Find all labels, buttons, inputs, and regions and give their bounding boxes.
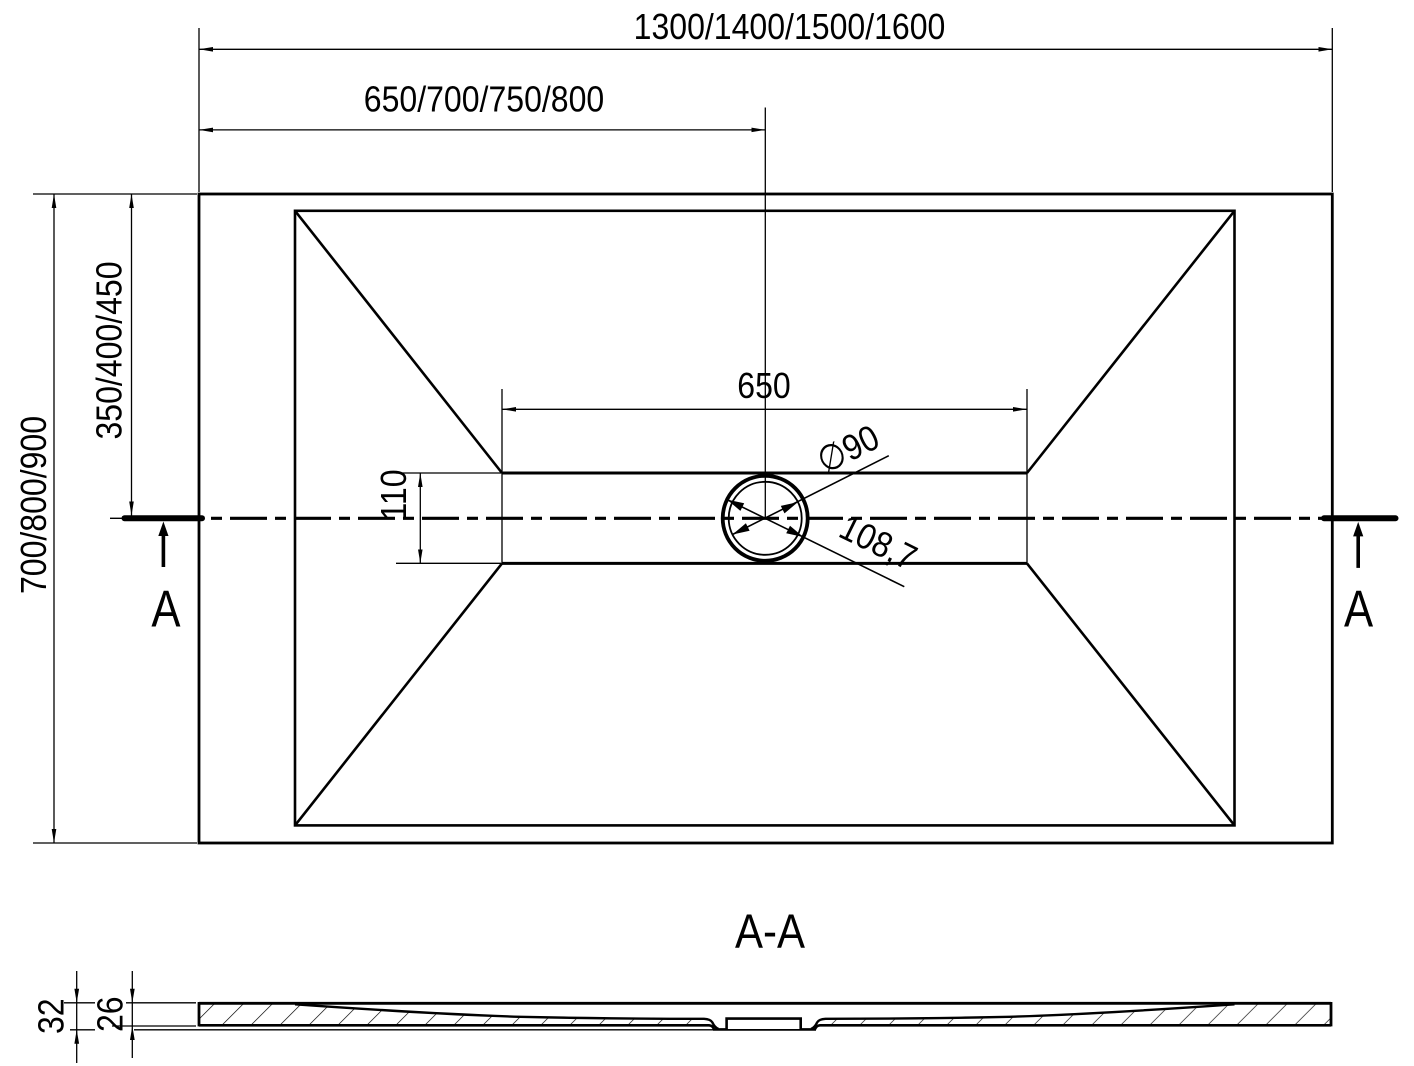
svg-text:A: A <box>1344 581 1373 638</box>
svg-text:350/400/450: 350/400/450 <box>90 261 130 439</box>
svg-text:110: 110 <box>374 469 414 520</box>
svg-text:A: A <box>151 581 180 638</box>
svg-text:700/800/900: 700/800/900 <box>14 416 54 594</box>
svg-text:1300/1400/1500/1600: 1300/1400/1500/1600 <box>634 7 946 47</box>
svg-text:650/700/750/800: 650/700/750/800 <box>364 80 604 120</box>
svg-text:A-A: A-A <box>735 904 805 958</box>
svg-text:26: 26 <box>91 996 131 1032</box>
svg-text:32: 32 <box>32 998 72 1034</box>
svg-text:650: 650 <box>737 366 790 406</box>
